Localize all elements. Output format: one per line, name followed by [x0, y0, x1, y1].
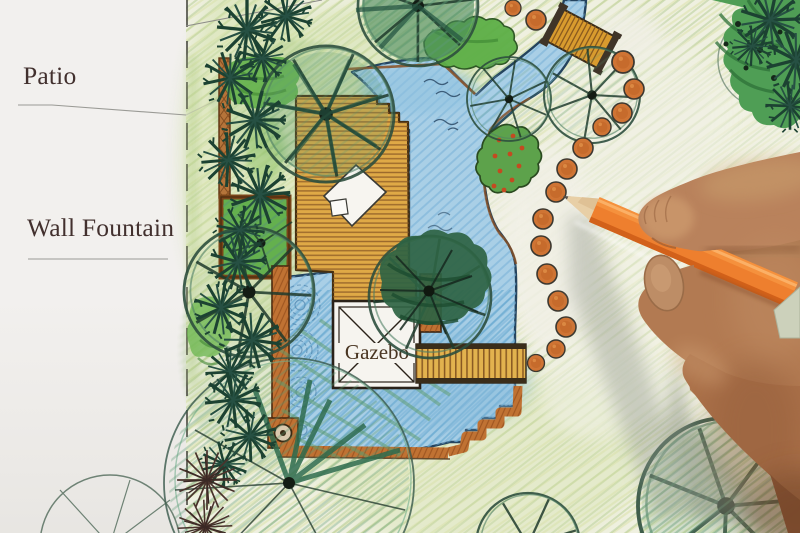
svg-text:Patio: Patio: [23, 61, 76, 90]
svg-text:Gazebo: Gazebo: [345, 340, 409, 364]
svg-text:Wall Fountain: Wall Fountain: [27, 213, 174, 242]
